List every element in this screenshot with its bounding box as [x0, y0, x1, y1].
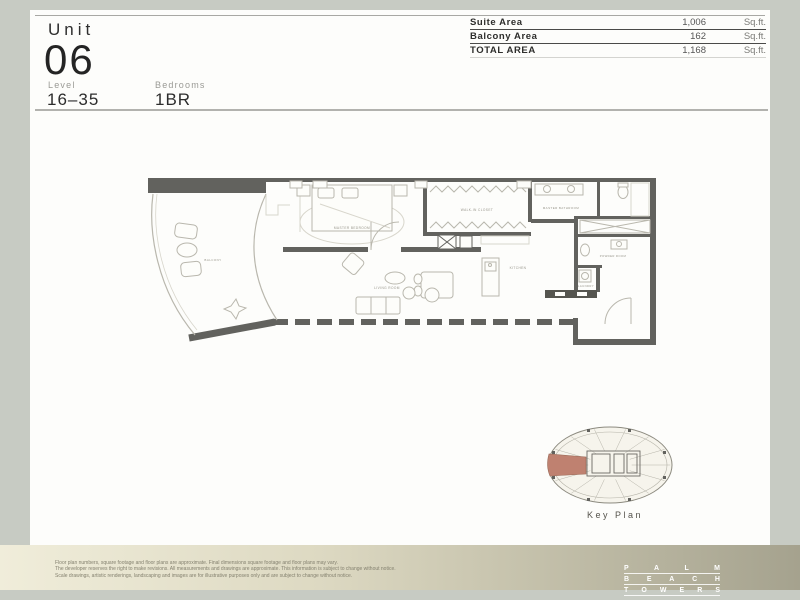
- plant-icon: [224, 299, 246, 319]
- area-row-unit: Sq.ft.: [706, 17, 766, 28]
- bedrooms-label: Bedrooms: [155, 80, 206, 90]
- walk-in-closet-label: WALK-IN CLOSET: [461, 208, 493, 212]
- powder-room-label: POWDER ROOM: [600, 254, 627, 258]
- laundry-label: LAUNDRY: [578, 284, 594, 288]
- linen-closet: [580, 220, 650, 233]
- table-row: Balcony Area 162 Sq.ft.: [470, 30, 766, 44]
- balcony-label: BALCONY: [204, 258, 221, 262]
- console-detail: [577, 292, 587, 296]
- logo-line: PALM: [624, 563, 720, 574]
- master-bathroom-label: MASTER BATHROOM: [543, 206, 580, 210]
- unit-number: 06: [44, 36, 95, 84]
- living-room-label: LIVING ROOM: [374, 286, 400, 290]
- level-label: Level: [48, 80, 76, 90]
- disclaimer-line: Scale drawings, artistic renderings, lan…: [55, 573, 475, 579]
- area-row-value: 1,168: [636, 45, 706, 56]
- table-row: Suite Area 1,006 Sq.ft.: [470, 16, 766, 30]
- logo-line: TOWERS: [624, 585, 720, 596]
- balcony-end-wall: [189, 322, 275, 338]
- palm-beach-towers-logo: PALM BEACH TOWERS: [624, 563, 720, 596]
- area-table: Suite Area 1,006 Sq.ft. Balcony Area 162…: [470, 16, 766, 58]
- walls: [148, 178, 656, 345]
- balcony-area: [152, 194, 277, 335]
- area-row-unit: Sq.ft.: [706, 45, 766, 56]
- area-row-value: 162: [636, 31, 706, 42]
- area-row-label: Suite Area: [470, 17, 636, 28]
- kitchen-label: KITCHEN: [510, 266, 527, 270]
- entry-door: [605, 298, 631, 324]
- master-bedroom-label: MASTER BEDROOM: [334, 226, 370, 230]
- floor-plan-drawing: BALCONY MASTER BEDROOM WALK-IN CLOSET: [145, 172, 660, 347]
- footer-band: Floor plan numbers, square footage and f…: [0, 545, 800, 590]
- laundry-area: [579, 270, 591, 282]
- brochure-page: Unit 06 Level 16–35 Bedrooms 1BR Suite A…: [0, 0, 800, 600]
- area-row-label: Balcony Area: [470, 31, 636, 42]
- level-value: 16–35: [47, 90, 99, 110]
- logo-line: BEACH: [624, 574, 720, 585]
- key-plan: [538, 424, 692, 508]
- highlighted-unit: [548, 454, 586, 476]
- master-bathroom-area: [517, 181, 649, 216]
- master-bedroom-area: [266, 181, 427, 244]
- header-divider: [35, 109, 768, 111]
- table-row: TOTAL AREA 1,168 Sq.ft.: [470, 44, 766, 58]
- area-row-value: 1,006: [636, 17, 706, 28]
- walk-in-closet-area: [430, 186, 526, 228]
- service-shafts: [438, 235, 472, 249]
- bedrooms-value: 1BR: [155, 90, 191, 110]
- disclaimer-text: Floor plan numbers, square footage and f…: [55, 560, 475, 579]
- area-row-label: TOTAL AREA: [470, 45, 636, 56]
- entry-console: [545, 290, 597, 298]
- key-plan-label: Key Plan: [538, 510, 692, 520]
- area-row-unit: Sq.ft.: [706, 31, 766, 42]
- console-detail: [555, 292, 565, 296]
